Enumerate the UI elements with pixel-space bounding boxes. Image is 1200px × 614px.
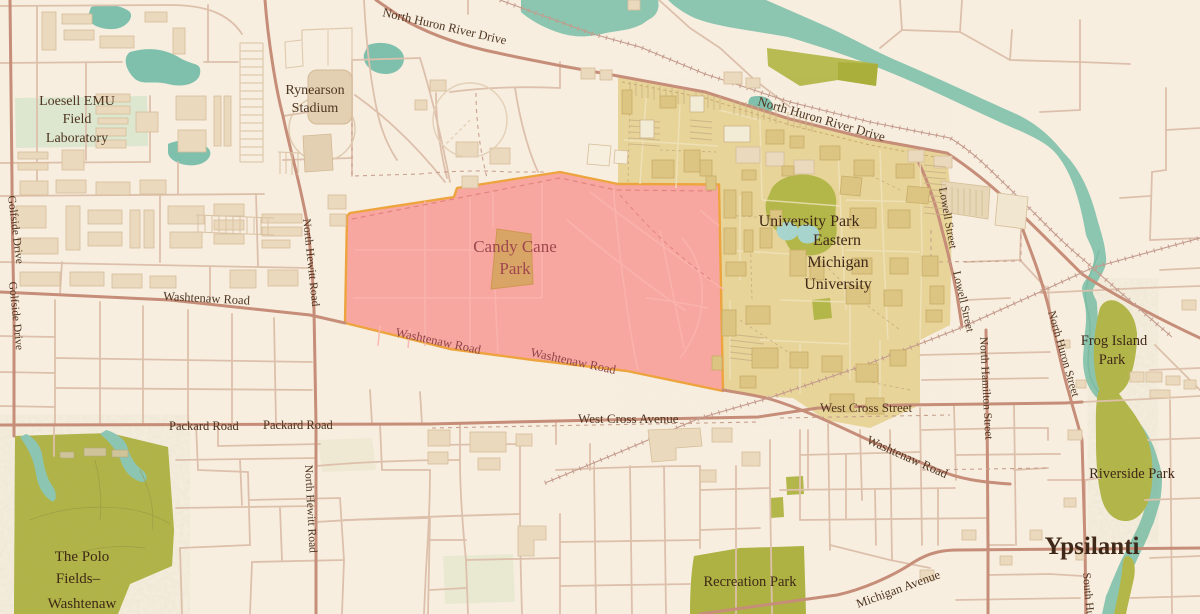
- svg-text:Frog Island: Frog Island: [1081, 333, 1148, 349]
- svg-text:Washtenaw: Washtenaw: [48, 596, 117, 612]
- svg-text:Recreation Park: Recreation Park: [703, 574, 797, 590]
- svg-text:Park: Park: [1099, 352, 1126, 368]
- svg-text:Fields–: Fields–: [56, 571, 101, 587]
- svg-text:Michigan: Michigan: [807, 254, 868, 271]
- svg-text:West Cross Street: West Cross Street: [820, 400, 912, 415]
- svg-text:University Park: University Park: [759, 213, 860, 230]
- svg-text:Riverside Park: Riverside Park: [1089, 466, 1176, 482]
- svg-text:Field: Field: [63, 112, 92, 127]
- svg-text:Eastern: Eastern: [813, 232, 861, 249]
- svg-text:Ypsilanti: Ypsilanti: [1045, 533, 1140, 560]
- svg-text:Laboratory: Laboratory: [46, 131, 108, 146]
- svg-text:The Polo: The Polo: [55, 549, 110, 565]
- svg-text:Park: Park: [499, 259, 531, 278]
- svg-text:West Cross Avenue: West Cross Avenue: [578, 411, 679, 426]
- svg-text:University: University: [804, 276, 872, 293]
- svg-text:Packard Road: Packard Road: [169, 419, 240, 433]
- svg-text:Candy Cane: Candy Cane: [473, 237, 557, 256]
- svg-text:Loesell EMU: Loesell EMU: [39, 94, 115, 109]
- svg-text:Stadium: Stadium: [292, 101, 339, 116]
- svg-text:Rynearson: Rynearson: [285, 83, 344, 98]
- svg-text:Packard Road: Packard Road: [263, 418, 334, 432]
